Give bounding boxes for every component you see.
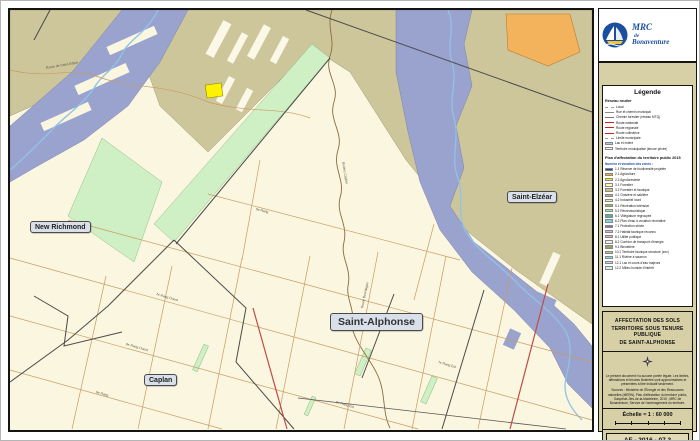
- legend-item-label: 2.1 Agriculture: [615, 172, 635, 176]
- legend-item-label: Route régionale: [616, 126, 639, 130]
- legend-item-label: 1.1 Réserve de biodiversité projetée: [615, 167, 666, 171]
- legend-swatch: [605, 240, 613, 243]
- legend-item-label: 4.2 Industriel lourd: [615, 198, 641, 202]
- place-label: Saint-Elzéar: [507, 191, 557, 203]
- legend-swatch: [605, 214, 613, 217]
- road-label: 7e Rang Ouest: [155, 292, 178, 302]
- legend-swatch: [605, 235, 613, 238]
- legend-panel: Légende Réseau routier LocalRue et chemi…: [602, 85, 693, 307]
- legend-swatch: [605, 178, 613, 181]
- legend-item-label: 2.2 Agroforesterie: [615, 178, 640, 182]
- title-block: AFFECTATION DES SOLS TERRITOIRE SOUS TEN…: [602, 311, 693, 441]
- legend-swatch: [605, 138, 614, 139]
- legend-item-label: Route collectrice: [616, 131, 640, 135]
- legend-swatch: [605, 122, 614, 123]
- legend-item-label: Chemin forestier (réseau MTQ): [616, 115, 660, 119]
- legend-item-label: 6.2 Plan d'eau à vocation récréative: [615, 219, 666, 223]
- legend-item-label: 7.2 Habitat faunique reconnu: [615, 230, 656, 234]
- legend-swatch: [605, 209, 613, 212]
- legend-network-header: Réseau routier: [605, 99, 690, 103]
- road-label: Route Bourdages: [360, 282, 369, 309]
- scale-section: Échelle ≈ 1 : 60 000: [603, 408, 692, 429]
- legend-title: Légende: [605, 89, 690, 96]
- road-label: 9e Rang: [95, 390, 108, 397]
- legend-swatch: [605, 168, 613, 171]
- legend-swatch: [605, 204, 613, 207]
- sailboat-logo-icon: [601, 21, 629, 49]
- legend-swatch: [605, 219, 613, 222]
- legend-swatch: [605, 117, 614, 118]
- map-sheet-page: New RichmondSaint-ElzéarSaint-AlphonseCa…: [0, 0, 700, 441]
- road-label: 8e Rang Est: [335, 400, 354, 409]
- compass-rose-icon: [642, 356, 653, 367]
- logo-text: MRC de Bonaventure: [632, 23, 669, 47]
- legend-item-label: 6.1 Villégiature regroupée: [615, 214, 651, 218]
- legend-plan-subheader: Numéro et vocation des zones :: [605, 162, 690, 166]
- legend-swatch: [605, 266, 613, 269]
- legend-swatch: [605, 230, 613, 233]
- map-title-line1: AFFECTATION DES SOLS: [604, 318, 691, 324]
- legend-swatch: [605, 173, 613, 176]
- legend-swatch: [605, 261, 613, 264]
- legend-item-label: 11.1 Rivière à saumon: [615, 255, 647, 259]
- legend-item-label: Rue et chemin municipal: [616, 110, 651, 114]
- legend-item-label: Limite municipale: [616, 136, 641, 140]
- legend-item-label: Route nationale: [616, 121, 638, 125]
- legend-swatch: [605, 199, 613, 202]
- road-label: Route de Saint-Edgar: [46, 60, 79, 70]
- legend-swatch: [605, 245, 613, 248]
- legend-network-list: LocalRue et chemin municipalChemin fores…: [605, 105, 690, 152]
- legend-item-label: 3.1 Forestier: [615, 183, 633, 187]
- legend-item-label: 8.2 Corridor de transport d'énergie: [615, 240, 664, 244]
- legend-item-label: 10.1 Territoire faunique structuré (zec): [615, 250, 669, 254]
- logo-org-name: MRC: [632, 23, 669, 33]
- sheet-code: AF - 2016 - 07.3: [606, 433, 689, 441]
- map-info-section: Le présent document n'a aucune portée lé…: [603, 351, 692, 408]
- scale-label: Échelle ≈ 1 : 60 000: [606, 412, 689, 418]
- disclaimer-text: Le présent document n'a aucune portée lé…: [605, 374, 690, 386]
- legend-item-label: 4.1 Gravière et sablière: [615, 193, 648, 197]
- scale-bar: [615, 421, 681, 425]
- legend-item-label: 12.1 Lac et cours d'eau majeurs: [615, 261, 660, 265]
- map-labels-layer: New RichmondSaint-ElzéarSaint-AlphonseCa…: [10, 10, 592, 430]
- map-title-line2: TERRITOIRE SOUS TENURE PUBLIQUE: [604, 326, 691, 338]
- legend-swatch: [605, 107, 614, 108]
- legend-swatch: [605, 251, 613, 254]
- legend-item-label: 7.1 Protection stricte: [615, 224, 644, 228]
- legend-swatch: [605, 183, 613, 186]
- map-canvas: New RichmondSaint-ElzéarSaint-AlphonseCa…: [8, 8, 594, 432]
- legend-plan-header: Plan d'affectation du territoire public …: [605, 156, 690, 160]
- legend-swatch: [605, 147, 613, 150]
- road-label: 7e Rang Est: [437, 360, 456, 369]
- place-label: New Richmond: [30, 221, 91, 233]
- map-title: AFFECTATION DES SOLS TERRITOIRE SOUS TEN…: [603, 312, 692, 351]
- legend-swatch: [605, 142, 613, 145]
- legend-swatch: [605, 127, 614, 128]
- legend-swatch: [605, 256, 613, 259]
- road-label: Rivière Caplan: [341, 162, 349, 185]
- legend-swatch: [605, 188, 613, 191]
- legend-swatch: [605, 112, 614, 113]
- legend-item-label: 9.1 Bleuetière: [615, 245, 635, 249]
- legend-plan-list: 1.1 Réserve de biodiversité projetée2.1 …: [605, 167, 690, 271]
- legend-item-label: Local: [616, 105, 624, 109]
- side-panel: MRC de Bonaventure Légende Réseau routie…: [598, 8, 697, 432]
- legend-item: 12.2 Milieu humide d'intérêt: [605, 265, 690, 270]
- sheet-code-section: AF - 2016 - 07.3: [603, 429, 692, 441]
- legend-item-label: 5.1 Récréation intensive: [615, 204, 649, 208]
- legend-swatch: [605, 194, 613, 197]
- legend-swatch: [605, 133, 614, 134]
- place-label: Caplan: [144, 374, 177, 386]
- road-label: 6e Rang: [255, 207, 268, 214]
- legend-swatch: [605, 225, 613, 228]
- logo-org-region: Bonaventure: [632, 39, 669, 47]
- organization-logo: MRC de Bonaventure: [599, 9, 696, 63]
- legend-item-label: 8.1 Utilité publique: [615, 235, 641, 239]
- road-label: 8e Rang Ouest: [125, 342, 148, 352]
- sources-text: Sources : Ministère de l'Énergie et des …: [605, 388, 690, 405]
- legend-item-label: 5.2 Récréotouristique: [615, 209, 645, 213]
- legend-item-label: 3.2 Forestier et faunique: [615, 188, 650, 192]
- map-title-line3: DE SAINT-ALPHONSE: [604, 340, 691, 346]
- legend-item-label: Lac et rivière: [615, 141, 633, 145]
- place-label: Saint-Alphonse: [330, 313, 423, 331]
- legend-item-label: 12.2 Milieu humide d'intérêt: [615, 266, 654, 270]
- legend-item-label: Territoire municipalisé (tenure privée): [615, 147, 667, 151]
